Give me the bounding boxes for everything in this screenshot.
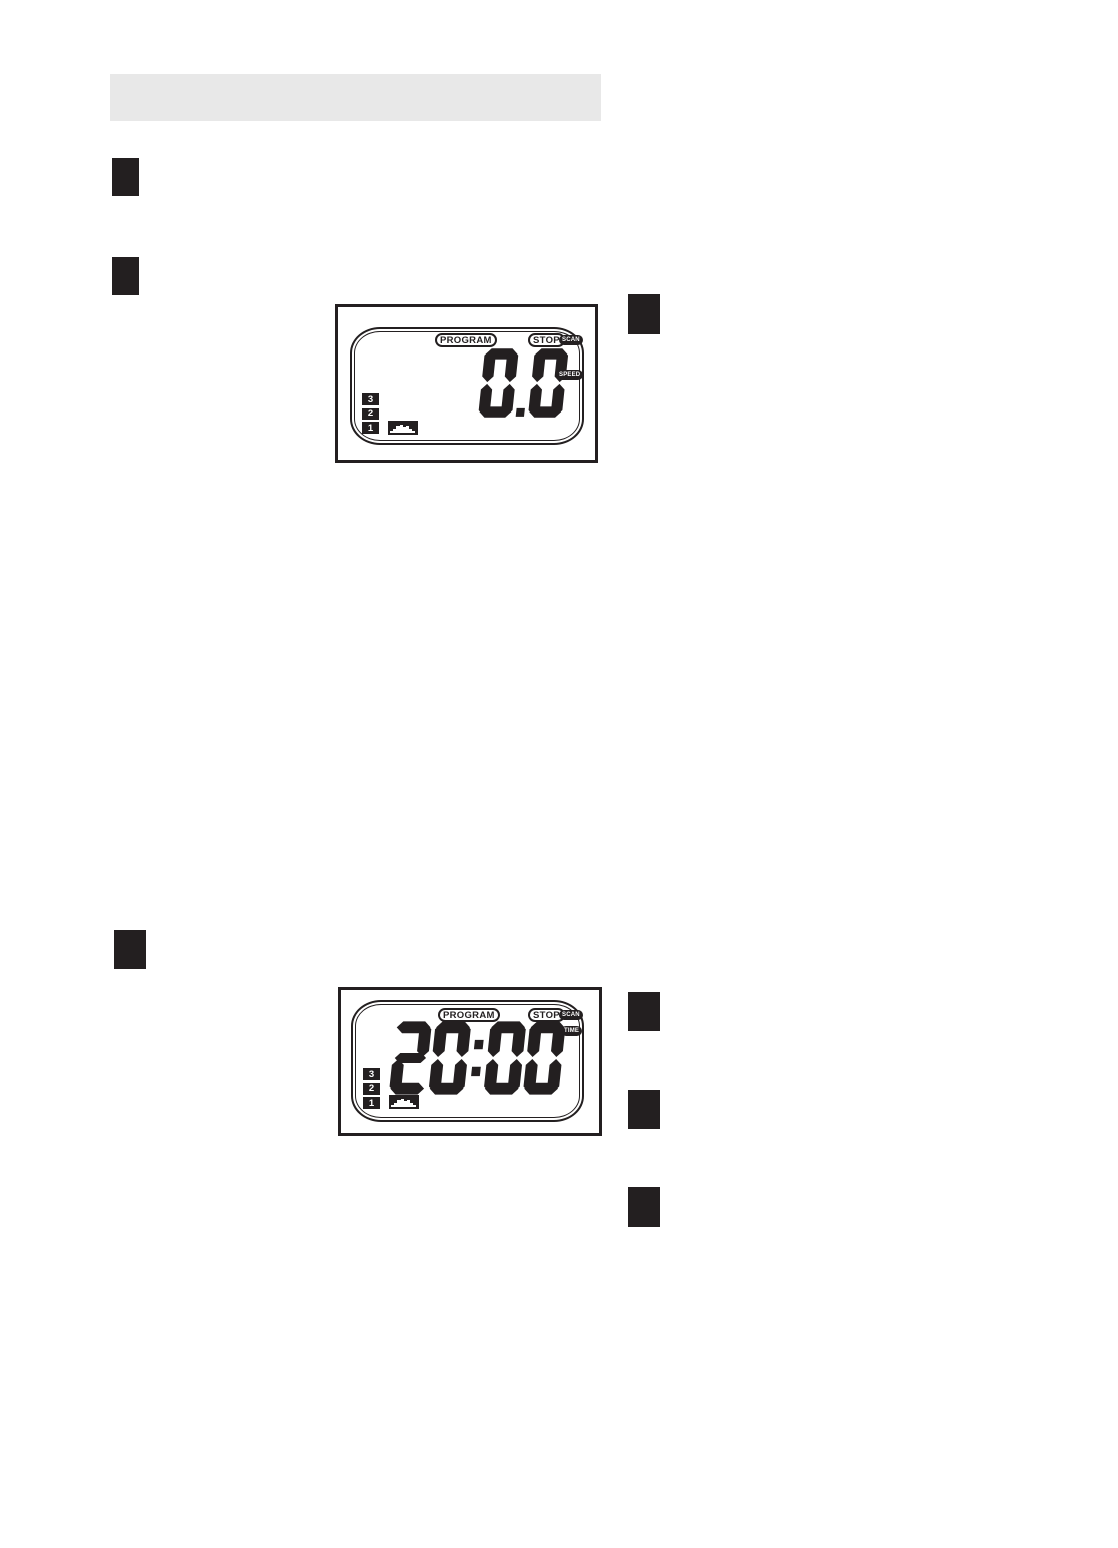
level-chip: 3 <box>362 393 379 405</box>
scan-indicator: SCAN <box>559 335 583 345</box>
step-number-block <box>628 1187 660 1227</box>
section-header-bar <box>110 74 601 121</box>
console-display-figure-speed: PROGRAM STOP SCAN SPEED 3 2 1 <box>335 304 598 463</box>
step-number-block <box>114 930 146 969</box>
program-indicator: PROGRAM <box>435 333 497 347</box>
program-indicator: PROGRAM <box>438 1008 500 1022</box>
seven-segment-readout <box>388 1021 567 1095</box>
step-number-block <box>628 294 660 334</box>
scan-indicator: SCAN <box>559 1010 583 1020</box>
step-number-block <box>112 257 139 295</box>
level-chip: 1 <box>363 1097 380 1109</box>
step-number-block <box>628 1090 660 1129</box>
level-chip: 2 <box>362 408 379 420</box>
profile-graph-icon <box>388 421 418 435</box>
level-indicator-stack: 3 2 1 <box>363 1068 380 1109</box>
time-indicator: TIME <box>561 1026 582 1036</box>
step-number-block <box>112 158 139 196</box>
profile-graph-icon <box>388 1095 420 1109</box>
level-indicator-stack: 3 2 1 <box>362 393 379 434</box>
console-display-figure-time: PROGRAM STOP SCAN TIME 3 2 1 <box>338 987 602 1136</box>
seven-segment-readout <box>477 348 570 418</box>
level-chip: 2 <box>363 1083 380 1095</box>
speed-indicator: SPEED <box>556 370 583 380</box>
step-number-block <box>628 992 660 1031</box>
level-chip: 1 <box>362 422 379 434</box>
level-chip: 3 <box>363 1068 380 1080</box>
